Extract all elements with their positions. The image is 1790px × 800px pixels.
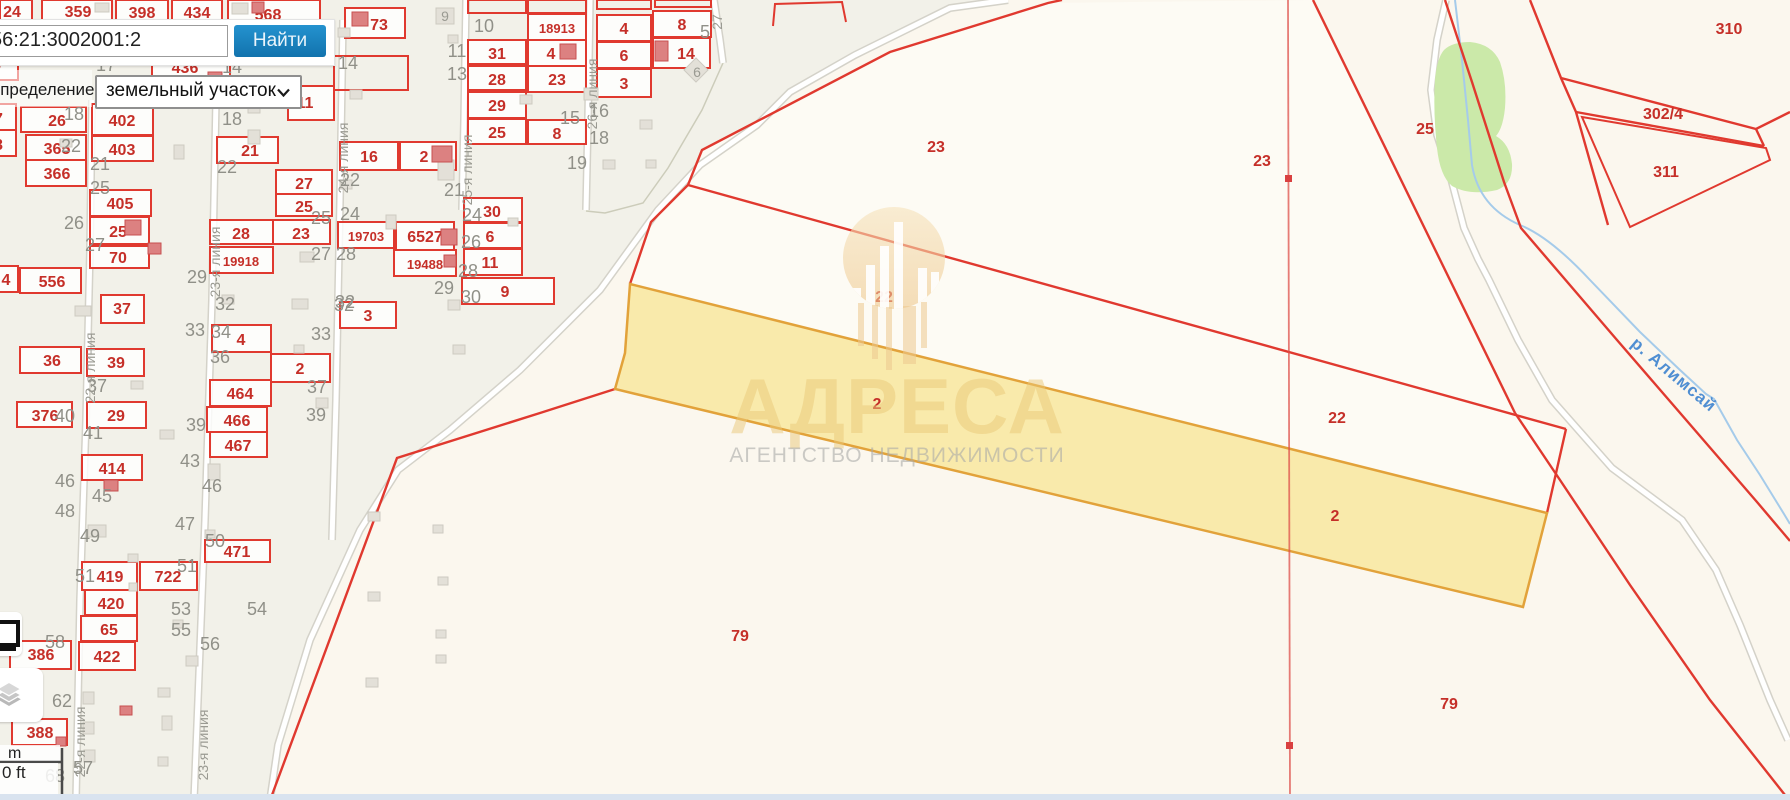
svg-text:556: 556 (39, 274, 66, 291)
svg-text:26: 26 (64, 213, 84, 233)
svg-text:37: 37 (307, 377, 327, 397)
svg-text:4: 4 (547, 46, 556, 63)
svg-text:422: 422 (94, 649, 121, 666)
svg-text:3: 3 (620, 76, 629, 93)
svg-text:18: 18 (0, 137, 3, 154)
svg-text:9: 9 (441, 8, 449, 24)
svg-text:23: 23 (927, 139, 945, 156)
svg-text:58: 58 (45, 632, 65, 652)
svg-text:6: 6 (693, 64, 701, 80)
svg-text:22-я линия: 22-я линия (82, 333, 98, 404)
svg-text:6: 6 (620, 48, 629, 65)
svg-text:55: 55 (171, 620, 191, 640)
svg-text:29: 29 (434, 278, 454, 298)
svg-text:29: 29 (488, 98, 506, 115)
svg-text:31: 31 (488, 46, 506, 63)
svg-text:39: 39 (107, 355, 125, 372)
svg-text:3: 3 (364, 308, 373, 325)
svg-text:16: 16 (360, 149, 378, 166)
svg-text:28: 28 (488, 72, 506, 89)
svg-text:8: 8 (553, 126, 562, 143)
svg-text:41: 41 (83, 423, 103, 443)
svg-text:АГЕНТСТВО НЕДВИЖИМОСТИ: АГЕНТСТВО НЕДВИЖИМОСТИ (729, 444, 1064, 467)
svg-text:403: 403 (109, 142, 136, 159)
svg-text:9: 9 (501, 284, 510, 301)
svg-text:24-я линия: 24-я линия (335, 123, 351, 194)
svg-text:27: 27 (295, 176, 313, 193)
svg-text:6: 6 (486, 229, 495, 246)
svg-text:25: 25 (1416, 121, 1434, 138)
svg-text:15: 15 (560, 108, 580, 128)
svg-text:50: 50 (205, 531, 225, 551)
svg-text:73: 73 (370, 17, 388, 34)
svg-text:54: 54 (247, 599, 267, 619)
svg-text:24: 24 (462, 205, 482, 225)
svg-text:48: 48 (55, 501, 75, 521)
svg-text:56: 56 (200, 634, 220, 654)
svg-text:27: 27 (85, 235, 105, 255)
svg-text:14: 14 (338, 53, 358, 73)
svg-text:53: 53 (171, 599, 191, 619)
svg-text:19918: 19918 (223, 254, 259, 269)
svg-text:37: 37 (113, 301, 131, 318)
svg-text:388: 388 (27, 725, 54, 742)
svg-text:36: 36 (43, 353, 61, 370)
svg-text:27: 27 (311, 244, 331, 264)
svg-text:25: 25 (90, 178, 110, 198)
svg-text:25: 25 (109, 224, 127, 241)
svg-text:33: 33 (311, 324, 331, 344)
svg-text:18: 18 (589, 128, 609, 148)
svg-text:24: 24 (340, 204, 360, 224)
svg-text:419: 419 (97, 569, 124, 586)
svg-text:302/4: 302/4 (1643, 106, 1683, 123)
svg-text:466: 466 (224, 413, 251, 430)
svg-text:22: 22 (1328, 410, 1346, 427)
svg-text:АДРЕСА: АДРЕСА (729, 362, 1065, 450)
svg-text:8: 8 (678, 17, 687, 34)
svg-text:23: 23 (548, 72, 566, 89)
svg-text:36: 36 (210, 347, 230, 367)
svg-text:18: 18 (64, 104, 84, 124)
svg-text:70: 70 (109, 250, 127, 267)
svg-text:405: 405 (107, 196, 134, 213)
svg-text:51: 51 (75, 566, 95, 586)
svg-text:4: 4 (2, 272, 11, 289)
svg-text:30: 30 (461, 287, 481, 307)
svg-text:11: 11 (448, 41, 467, 61)
svg-text:28: 28 (458, 261, 478, 281)
svg-text:23-я линия: 23-я линия (207, 227, 223, 298)
svg-text:414: 414 (99, 461, 126, 478)
svg-text:18913: 18913 (539, 21, 575, 36)
svg-text:22: 22 (217, 157, 237, 177)
svg-text:23: 23 (292, 226, 310, 243)
svg-text:4: 4 (237, 332, 246, 349)
svg-text:27: 27 (709, 14, 725, 30)
svg-text:34: 34 (211, 322, 231, 342)
svg-text:29: 29 (187, 267, 207, 287)
svg-text:2: 2 (1331, 508, 1340, 525)
svg-text:22: 22 (61, 136, 81, 156)
svg-text:65: 65 (100, 622, 118, 639)
svg-text:14: 14 (677, 46, 695, 63)
svg-text:4: 4 (620, 21, 629, 38)
svg-text:33: 33 (185, 320, 205, 340)
svg-text:21: 21 (90, 154, 110, 174)
svg-text:25-я линия: 25-я линия (459, 135, 475, 206)
svg-text:39: 39 (306, 405, 326, 425)
svg-text:47: 47 (175, 514, 195, 534)
svg-text:28: 28 (336, 244, 356, 264)
svg-text:366: 366 (44, 166, 71, 183)
svg-text:17: 17 (0, 111, 3, 128)
svg-text:32: 32 (334, 295, 354, 315)
svg-text:22-я линия: 22-я линия (72, 707, 88, 778)
svg-text:18: 18 (222, 109, 242, 129)
svg-text:28: 28 (232, 226, 250, 243)
svg-text:29: 29 (107, 408, 125, 425)
svg-text:43: 43 (180, 451, 200, 471)
svg-text:26: 26 (461, 232, 481, 252)
svg-text:46: 46 (202, 476, 222, 496)
svg-text:310: 310 (1716, 21, 1743, 38)
svg-text:471: 471 (224, 544, 251, 561)
svg-text:49: 49 (80, 526, 100, 546)
svg-text:13: 13 (447, 64, 467, 84)
svg-text:30: 30 (483, 204, 501, 221)
svg-text:467: 467 (225, 438, 252, 455)
svg-text:6527: 6527 (407, 229, 443, 246)
svg-text:23: 23 (1253, 153, 1271, 170)
svg-text:23-я линия: 23-я линия (195, 710, 211, 781)
svg-text:51: 51 (177, 556, 197, 576)
svg-text:2: 2 (420, 149, 429, 166)
svg-text:45: 45 (92, 486, 112, 506)
svg-text:420: 420 (98, 596, 125, 613)
svg-text:25: 25 (311, 208, 331, 228)
svg-text:464: 464 (227, 386, 254, 403)
svg-text:19: 19 (567, 153, 587, 173)
svg-text:2: 2 (296, 361, 305, 378)
svg-text:19488: 19488 (407, 257, 443, 272)
svg-text:79: 79 (1440, 696, 1458, 713)
svg-text:39: 39 (186, 415, 206, 435)
svg-text:19703: 19703 (348, 229, 384, 244)
svg-text:26-я линия: 26-я линия (584, 59, 600, 130)
svg-text:79: 79 (731, 628, 749, 645)
svg-text:46: 46 (55, 471, 75, 491)
svg-text:40: 40 (55, 406, 75, 426)
svg-text:62: 62 (52, 691, 72, 711)
svg-text:25: 25 (488, 125, 506, 142)
svg-text:10: 10 (474, 16, 494, 36)
svg-text:11: 11 (482, 255, 499, 272)
svg-text:21: 21 (241, 143, 259, 160)
svg-text:402: 402 (109, 113, 136, 130)
svg-text:311: 311 (1653, 164, 1679, 181)
